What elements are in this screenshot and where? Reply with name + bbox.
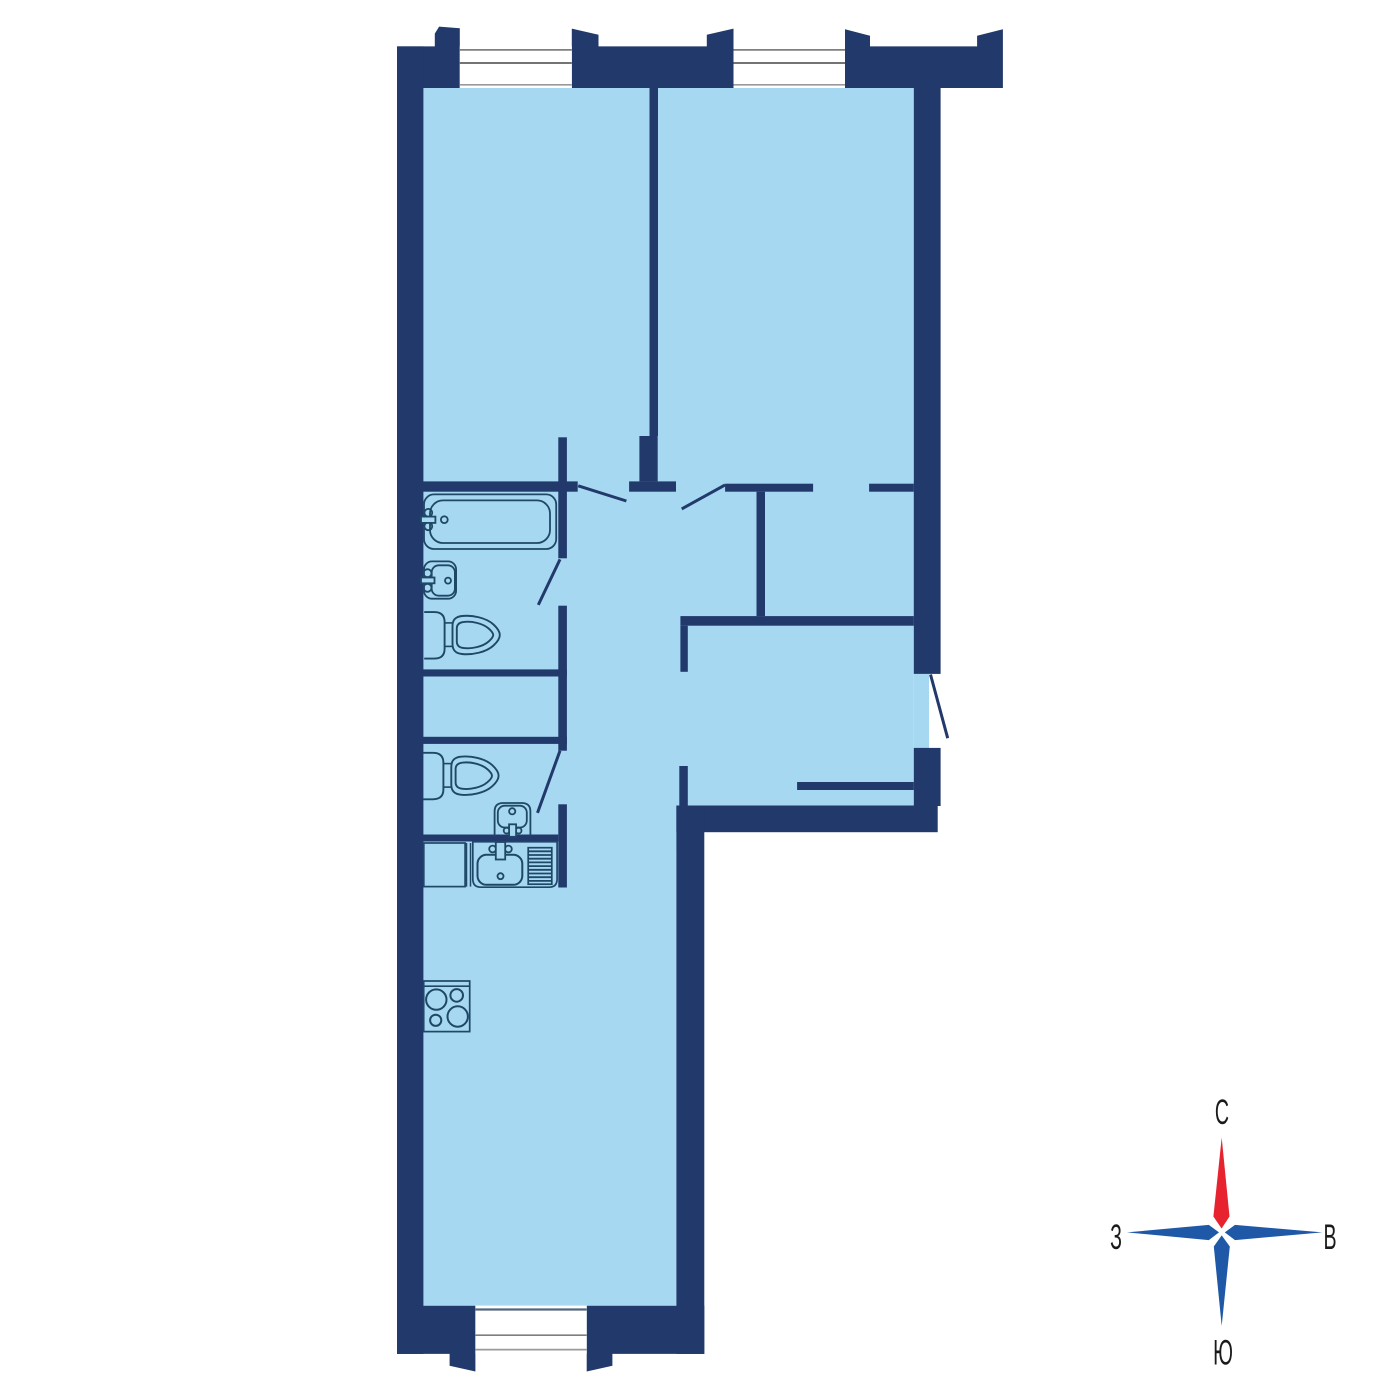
svg-text:З: З — [1110, 1218, 1122, 1257]
svg-text:С: С — [1215, 1093, 1229, 1132]
svg-text:В: В — [1323, 1218, 1336, 1257]
svg-text:Ю: Ю — [1213, 1334, 1233, 1373]
